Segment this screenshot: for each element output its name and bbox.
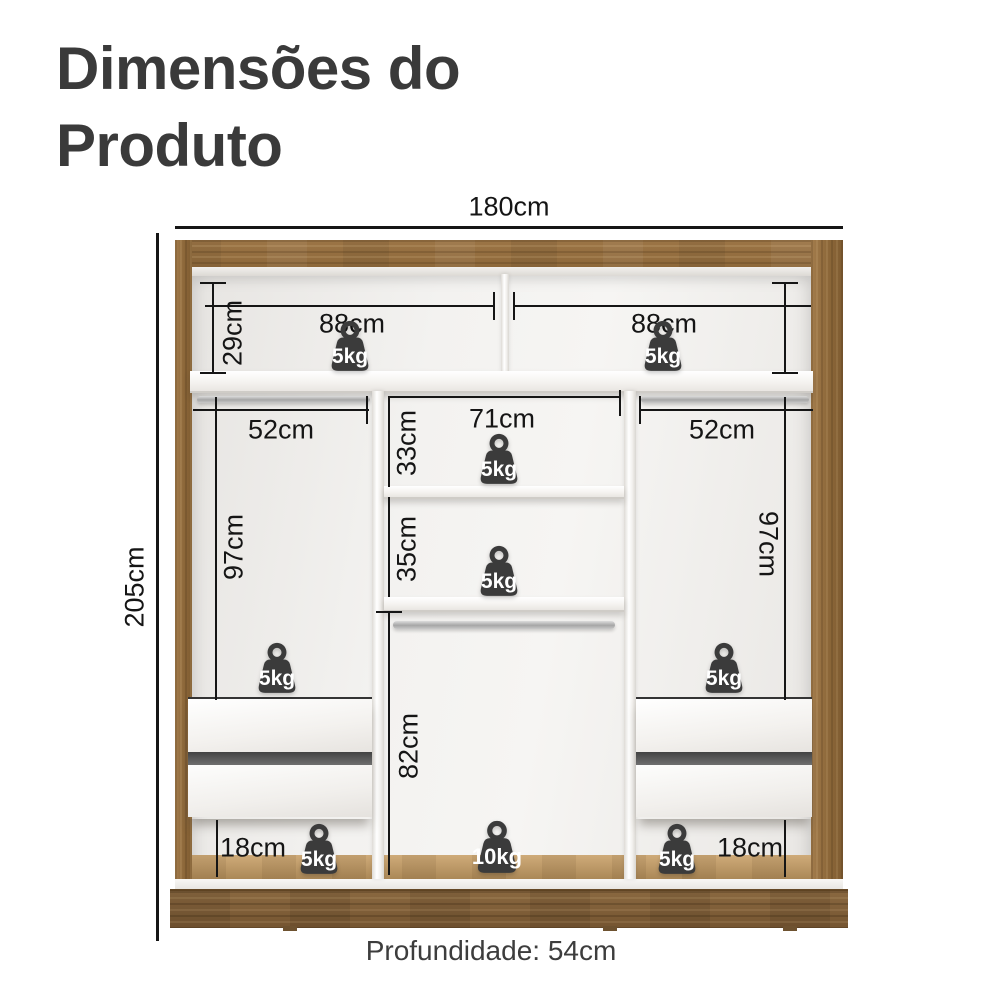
weight-value-label: 5kg (472, 570, 526, 594)
dim-tick (200, 372, 226, 374)
dim-line-top-left-width (205, 305, 495, 307)
dim-line-center-lower (388, 612, 390, 875)
weight-value-label: 5kg (636, 345, 690, 369)
dim-line-total-width (175, 226, 843, 229)
hanging-rod-center (393, 621, 615, 629)
dim-tick (772, 282, 798, 284)
dim-tick (619, 390, 621, 416)
right-height-label: 97cm (753, 511, 784, 577)
dim-line-right-height (784, 397, 786, 700)
dim-tick (366, 396, 368, 424)
dim-line-top-section-right (784, 283, 786, 374)
dim-line-top-right-width (513, 305, 811, 307)
weight-value-label: 10kg (465, 844, 529, 870)
page-title-line1: Dimensões do (56, 30, 460, 107)
drawer-front (188, 765, 372, 817)
drawer-handle-gap (188, 752, 372, 765)
center-width-label: 71cm (469, 404, 535, 435)
dim-line-center-upper (388, 396, 390, 487)
hanging-rod-left (197, 396, 370, 403)
divider-panel-right (624, 391, 636, 879)
dim-tick (639, 396, 641, 424)
center-middle-height-label: 35cm (392, 516, 423, 582)
weight-icon: 5kg (323, 318, 377, 376)
foot (283, 926, 297, 931)
weight-icon: 5kg (292, 821, 346, 879)
weight-icon: 5kg (472, 543, 526, 601)
weight-value-label: 5kg (292, 848, 346, 872)
center-lower-height-label: 82cm (394, 713, 425, 779)
weight-value-label: 5kg (697, 667, 751, 691)
dim-tick (200, 282, 226, 284)
dim-line-right-width (639, 409, 813, 411)
dim-line-left-width (193, 409, 369, 411)
dim-line-left-base (216, 820, 218, 877)
wardrobe-right-side-panel (811, 240, 843, 882)
dim-line-left-height (215, 397, 217, 700)
dim-tick (376, 611, 402, 613)
divider-panel-left (372, 391, 384, 879)
drawer-handle-gap (636, 752, 812, 765)
weight-value-label: 5kg (250, 667, 304, 691)
total-width-label: 180cm (468, 192, 549, 223)
weight-icon: 5kg (650, 821, 704, 879)
dim-tick (493, 292, 495, 320)
drawer-front (636, 765, 812, 817)
right-base-height-label: 18cm (717, 833, 783, 864)
depth-note: Profundidade: 54cm (366, 935, 617, 967)
total-height-label: 205cm (120, 546, 151, 627)
dim-tick (513, 292, 515, 320)
page-title-line2: Produto (56, 107, 460, 184)
main-shelf (190, 371, 813, 393)
weight-icon: 10kg (465, 818, 529, 878)
weight-icon: 5kg (250, 640, 304, 698)
dim-line-top-section (212, 283, 214, 374)
plinth (170, 889, 848, 928)
weight-value-label: 5kg (472, 458, 526, 482)
left-base-height-label: 18cm (220, 833, 286, 864)
dim-line-right-base (784, 820, 786, 877)
foot (783, 926, 797, 931)
drawer-front (188, 699, 372, 752)
weight-value-label: 5kg (650, 848, 704, 872)
foot (603, 926, 617, 931)
dim-line-total-height (156, 233, 159, 941)
top-section-height-label: 29cm (218, 300, 249, 366)
right-width-label: 52cm (689, 415, 755, 446)
weight-value-label: 5kg (323, 345, 377, 369)
drawer-unit-right (636, 697, 812, 819)
left-height-label: 97cm (219, 514, 250, 580)
weight-icon: 5kg (636, 318, 690, 376)
weight-icon: 5kg (472, 431, 526, 489)
center-upper-height-label: 33cm (392, 410, 423, 476)
top-divider-panel (501, 274, 509, 372)
drawer-unit-left (188, 697, 372, 819)
left-width-label: 52cm (248, 415, 314, 446)
weight-icon: 5kg (697, 640, 751, 698)
product-dimensions-diagram: Dimensões do Produto (0, 0, 1000, 1000)
base-edge-strip (175, 879, 843, 889)
dim-line-center-middle (388, 497, 390, 597)
page-title: Dimensões do Produto (56, 30, 460, 184)
dim-line-center-width (388, 396, 621, 398)
drawer-front (636, 699, 812, 752)
dim-tick (772, 372, 798, 374)
